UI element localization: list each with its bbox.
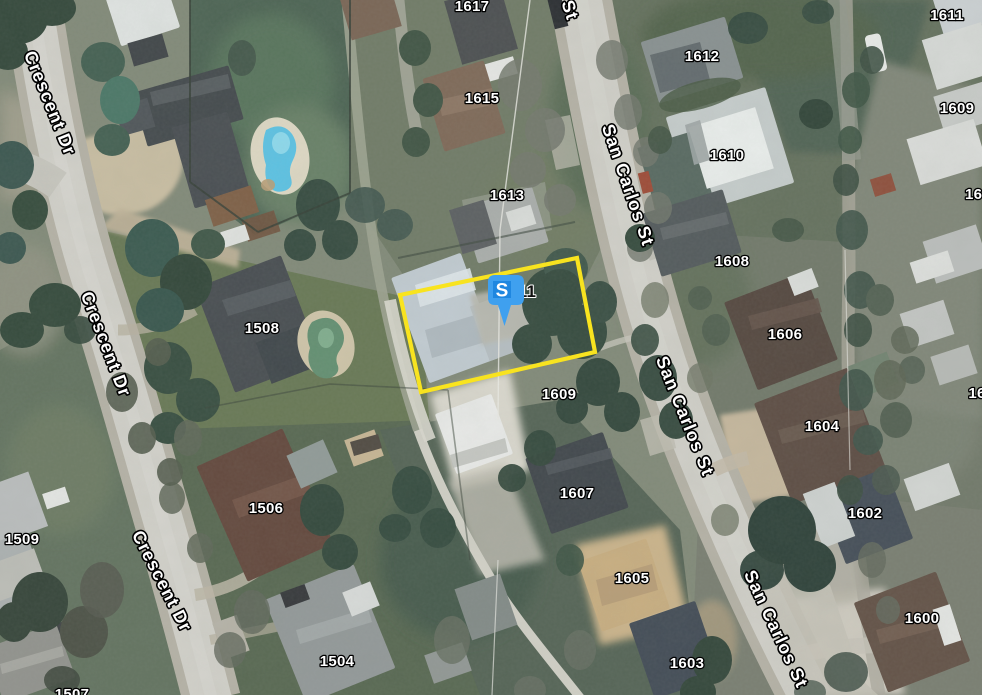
svg-text:1603: 1603 [670, 655, 705, 672]
svg-text:1604: 1604 [805, 418, 840, 435]
svg-text:1608: 1608 [715, 253, 750, 270]
svg-text:1606: 1606 [768, 326, 803, 343]
svg-text:1509: 1509 [5, 531, 40, 548]
svg-text:1507: 1507 [55, 686, 90, 695]
svg-text:1605: 1605 [615, 570, 650, 587]
svg-text:S: S [496, 281, 509, 302]
svg-text:1613: 1613 [490, 187, 525, 204]
svg-text:1506: 1506 [249, 500, 284, 517]
svg-text:1504: 1504 [320, 653, 355, 670]
svg-text:1610: 1610 [710, 147, 745, 164]
svg-text:16: 16 [968, 385, 982, 402]
svg-text:1612: 1612 [685, 48, 720, 65]
svg-text:1611: 1611 [930, 7, 964, 24]
svg-text:1615: 1615 [465, 90, 500, 107]
svg-text:1609: 1609 [542, 386, 577, 403]
svg-text:1607: 1607 [560, 485, 595, 502]
svg-text:1602: 1602 [848, 505, 883, 522]
svg-text:1617: 1617 [455, 0, 490, 15]
svg-text:1609: 1609 [940, 100, 975, 117]
svg-text:1600: 1600 [905, 610, 940, 627]
svg-text:1508: 1508 [245, 320, 280, 337]
svg-text:161: 161 [965, 186, 982, 203]
